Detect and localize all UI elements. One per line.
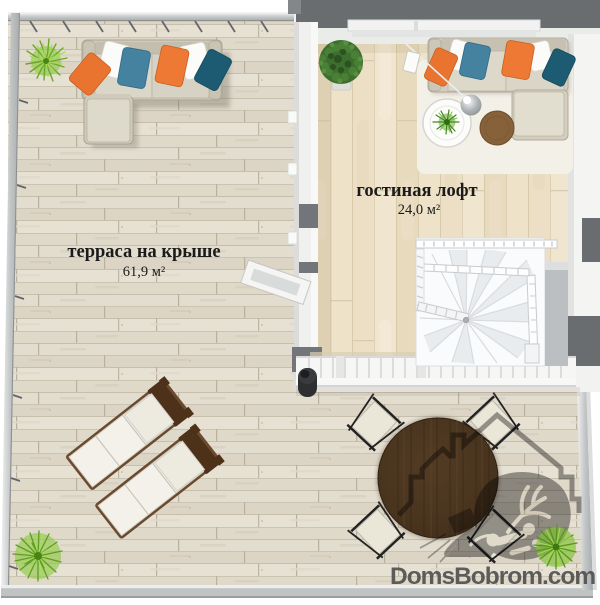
svg-text:24,0 м²: 24,0 м² <box>398 202 441 218</box>
svg-text:DomsBobrom.com: DomsBobrom.com <box>390 563 595 590</box>
svg-text:гостиная лофт: гостиная лофт <box>356 181 477 201</box>
svg-text:61,9 м²: 61,9 м² <box>123 264 166 280</box>
svg-text:терраса на крыше: терраса на крыше <box>67 242 220 262</box>
